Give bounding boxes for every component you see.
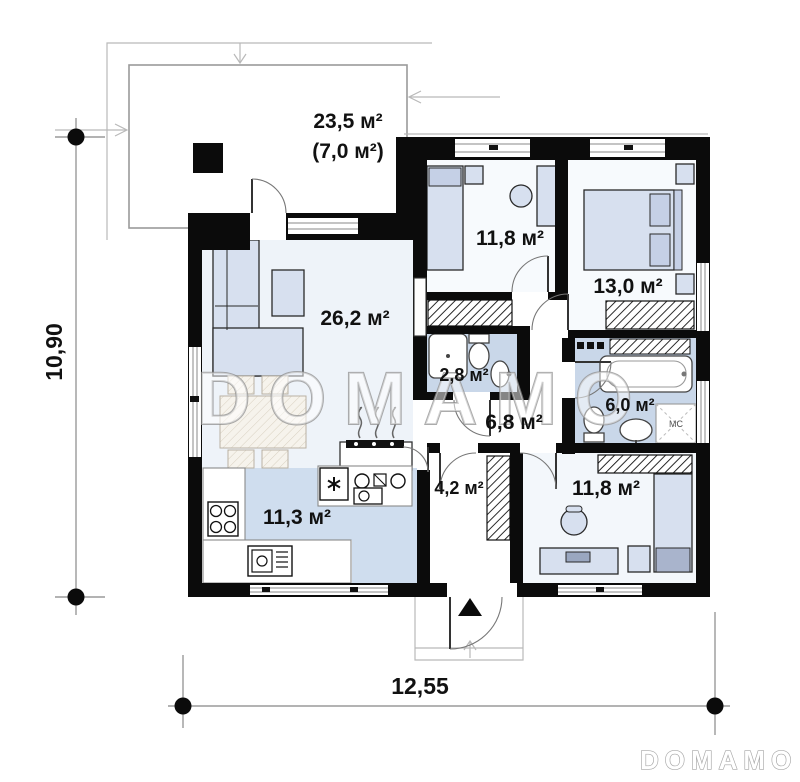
wardrobe-top-bedroom [428, 300, 512, 326]
label-terrace-secondary: (7,0 м²) [312, 140, 384, 163]
label-hallway: 6,8 м² [485, 411, 543, 434]
label-bathroom-large: 6,0 м² [605, 395, 654, 415]
wardrobe-entrance-hall [487, 456, 510, 540]
entrance-arrow [458, 598, 482, 616]
label-terrace-area: 23,5 м² [313, 110, 382, 133]
fridge-icon [320, 468, 348, 500]
window-bottom-bedroom [558, 585, 642, 595]
window-bottom-kitchen [250, 585, 388, 595]
wardrobe-bottom-bedroom [598, 455, 692, 473]
window-right-2 [697, 381, 709, 443]
floor-plan-page: DOMAMO 23,5 м² (7,0 м²) 11,8 м² 13,0 м² … [0, 0, 800, 782]
window-right-1 [697, 263, 709, 331]
window-terrace-wall [288, 218, 358, 234]
shelf-large-bath [610, 339, 690, 354]
watermark: DOMAMO [197, 357, 650, 440]
door-front [450, 597, 502, 649]
label-bedroom-bottom: 11,8 м² [572, 477, 640, 500]
wardrobe-right-bedroom [606, 301, 694, 329]
floor-plan-drawing: DOMAMO 23,5 м² (7,0 м²) 11,8 м² 13,0 м² … [0, 0, 800, 782]
dimension-height-label: 10,90 [41, 323, 67, 381]
label-bedroom-top: 11,8 м² [476, 227, 544, 250]
coffee-table [272, 270, 304, 316]
front-door-opening [447, 583, 517, 597]
label-kitchen: 11,3 м² [263, 506, 331, 529]
stove-icon [208, 502, 238, 536]
label-bathroom-small: 2,8 м² [439, 365, 488, 385]
window-top-2 [590, 139, 665, 157]
chair-top-bedroom [510, 185, 532, 207]
dimension-width-label: 12,55 [391, 673, 449, 699]
desk-bottom-bedroom [540, 548, 618, 574]
vent-squares [577, 342, 604, 349]
tv-niche [414, 278, 426, 336]
window-top-1 [455, 139, 530, 157]
label-washing-machine: МС [669, 419, 683, 429]
label-bedroom-right: 13,0 м² [593, 275, 662, 298]
label-entrance-hall: 4,2 м² [434, 478, 483, 498]
terrace-door-opening [250, 213, 286, 240]
label-living-room: 26,2 м² [320, 307, 389, 330]
brand-logo: DOMAMO [640, 745, 797, 775]
oven-icon [248, 546, 292, 576]
chimney [193, 143, 223, 173]
